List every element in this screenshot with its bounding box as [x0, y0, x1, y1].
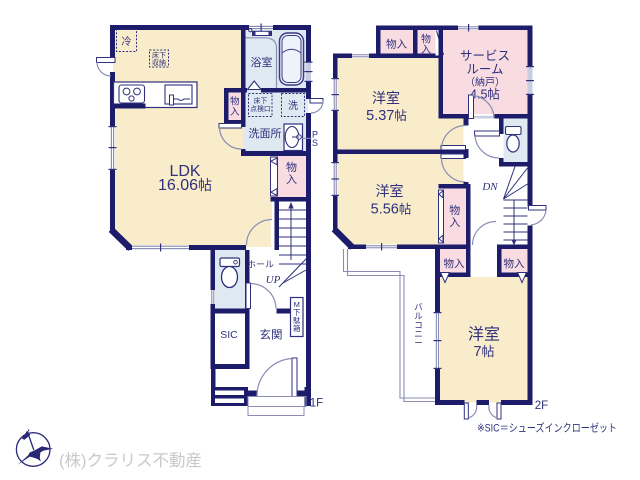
svg-text:物入: 物入 [504, 257, 525, 270]
svg-text:物入: 物入 [444, 257, 465, 270]
svg-text:物入: 物入 [386, 38, 407, 51]
svg-text:16.06帖: 16.06帖 [158, 177, 212, 194]
svg-text:床下: 床下 [152, 51, 166, 60]
svg-text:物: 物 [286, 160, 297, 174]
svg-text:DN: DN [481, 181, 498, 193]
svg-text:洗: 洗 [288, 100, 298, 112]
svg-text:入: 入 [421, 45, 431, 56]
svg-text:玄関: 玄関 [260, 328, 283, 342]
svg-text:洋室: 洋室 [376, 183, 404, 199]
svg-text:4.5帖: 4.5帖 [470, 87, 500, 102]
svg-text:物: 物 [230, 96, 240, 108]
svg-text:7帖: 7帖 [473, 344, 494, 360]
svg-text:1F: 1F [310, 398, 323, 410]
svg-text:UP: UP [266, 274, 281, 286]
svg-text:入: 入 [286, 174, 297, 186]
svg-text:洗面所: 洗面所 [249, 127, 282, 140]
svg-text:床下: 床下 [254, 96, 268, 105]
svg-text:2F: 2F [535, 400, 548, 412]
svg-text:ー: ー [414, 338, 423, 348]
svg-text:浴室: 浴室 [251, 55, 273, 69]
svg-text:入: 入 [449, 217, 460, 229]
svg-text:(株)クラリス不動産: (株)クラリス不動産 [59, 451, 202, 470]
svg-text:物: 物 [421, 33, 431, 46]
svg-text:洋室: 洋室 [468, 326, 500, 344]
svg-text:入: 入 [230, 107, 240, 118]
svg-text:洋室: 洋室 [372, 90, 400, 106]
svg-text:収納: 収納 [152, 58, 166, 67]
svg-text:ルーム: ルーム [466, 63, 503, 77]
svg-text:5.56帖: 5.56帖 [371, 202, 412, 218]
svg-text:5.37帖: 5.37帖 [366, 108, 407, 124]
svg-text:サービス: サービス [460, 49, 510, 63]
svg-text:SIC: SIC [220, 329, 238, 341]
svg-text:点検口: 点検口 [250, 104, 270, 113]
svg-text:S: S [312, 138, 318, 148]
svg-text:ホール: ホール [247, 260, 274, 270]
svg-text:※SIC＝シューズインクローゼット: ※SIC＝シューズインクローゼット [477, 421, 617, 435]
svg-text:箱: 箱 [293, 323, 301, 333]
svg-text:物: 物 [449, 203, 460, 217]
svg-text:冷: 冷 [122, 35, 132, 48]
